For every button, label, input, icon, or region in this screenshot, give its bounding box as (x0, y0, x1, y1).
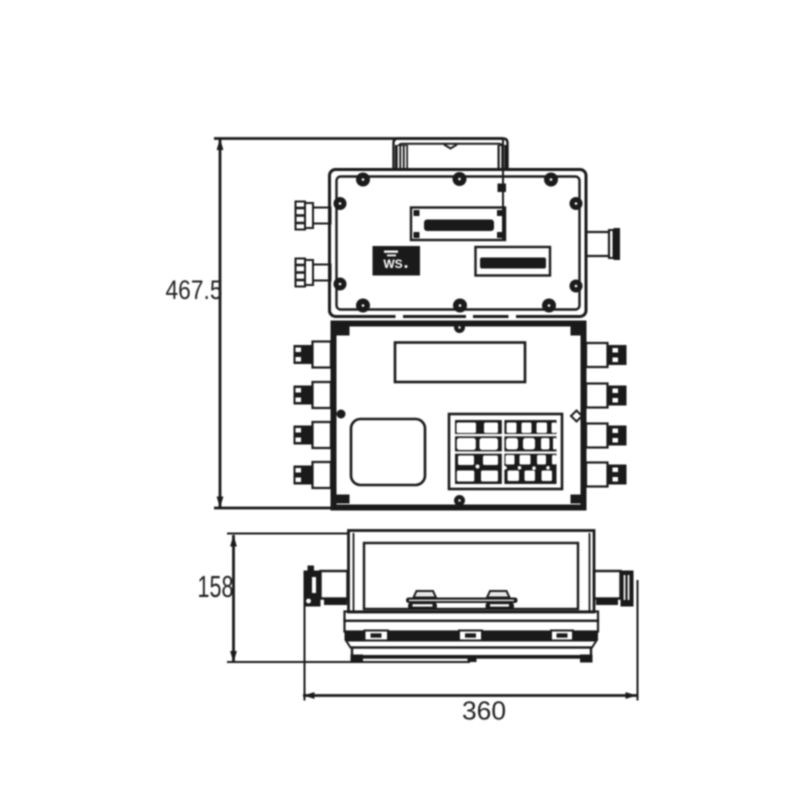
svg-text:WS: WS (383, 257, 402, 271)
svg-text:467.5: 467.5 (166, 275, 223, 305)
svg-text:158: 158 (198, 569, 234, 604)
svg-text:360: 360 (462, 696, 506, 726)
